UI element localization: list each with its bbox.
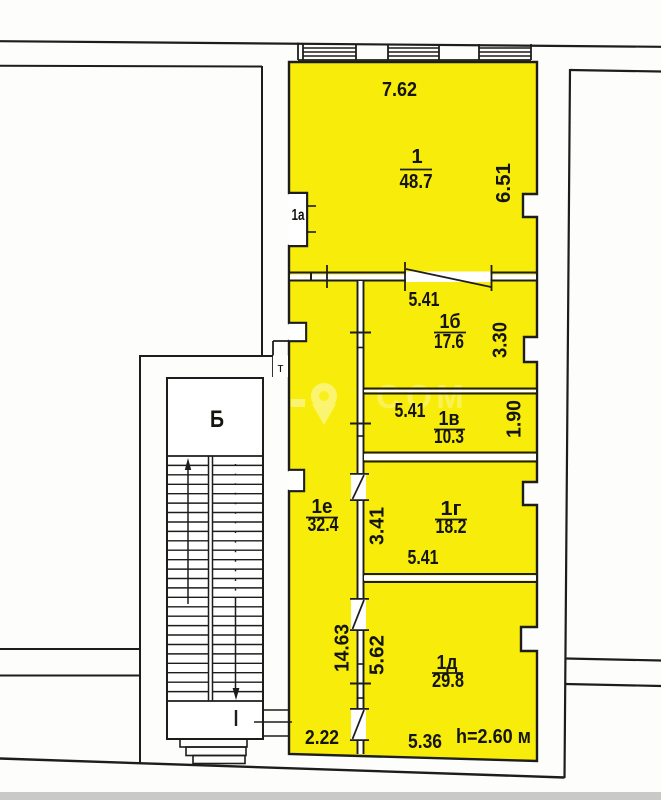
svg-text:1: 1 <box>411 146 422 168</box>
svg-text:29.8: 29.8 <box>432 670 464 692</box>
svg-text:1б: 1б <box>440 311 461 333</box>
svg-text:32.4: 32.4 <box>308 514 340 536</box>
svg-text:14.63: 14.63 <box>332 624 354 672</box>
svg-text:10.3: 10.3 <box>434 426 464 448</box>
svg-text:3.30: 3.30 <box>490 322 512 358</box>
svg-text:5.41: 5.41 <box>409 289 440 311</box>
svg-text:18.2: 18.2 <box>436 516 467 538</box>
svg-text:2.22: 2.22 <box>305 727 339 749</box>
svg-text:17.6: 17.6 <box>434 331 464 353</box>
svg-text:5.62: 5.62 <box>367 635 389 675</box>
svg-text:5.41: 5.41 <box>408 547 439 569</box>
svg-text:5.36: 5.36 <box>408 731 442 753</box>
svg-text:1.90: 1.90 <box>504 400 526 438</box>
svg-text:5.41: 5.41 <box>395 400 426 422</box>
svg-text:48.7: 48.7 <box>400 171 433 193</box>
svg-text:Б: Б <box>210 406 224 433</box>
svg-text:6.51: 6.51 <box>493 163 515 203</box>
svg-text:1а: 1а <box>292 207 305 224</box>
svg-text:т: т <box>278 360 284 375</box>
svg-text:3.41: 3.41 <box>367 507 389 545</box>
svg-text:7.62: 7.62 <box>382 79 417 101</box>
svg-text:h=2.60 м: h=2.60 м <box>456 726 531 748</box>
